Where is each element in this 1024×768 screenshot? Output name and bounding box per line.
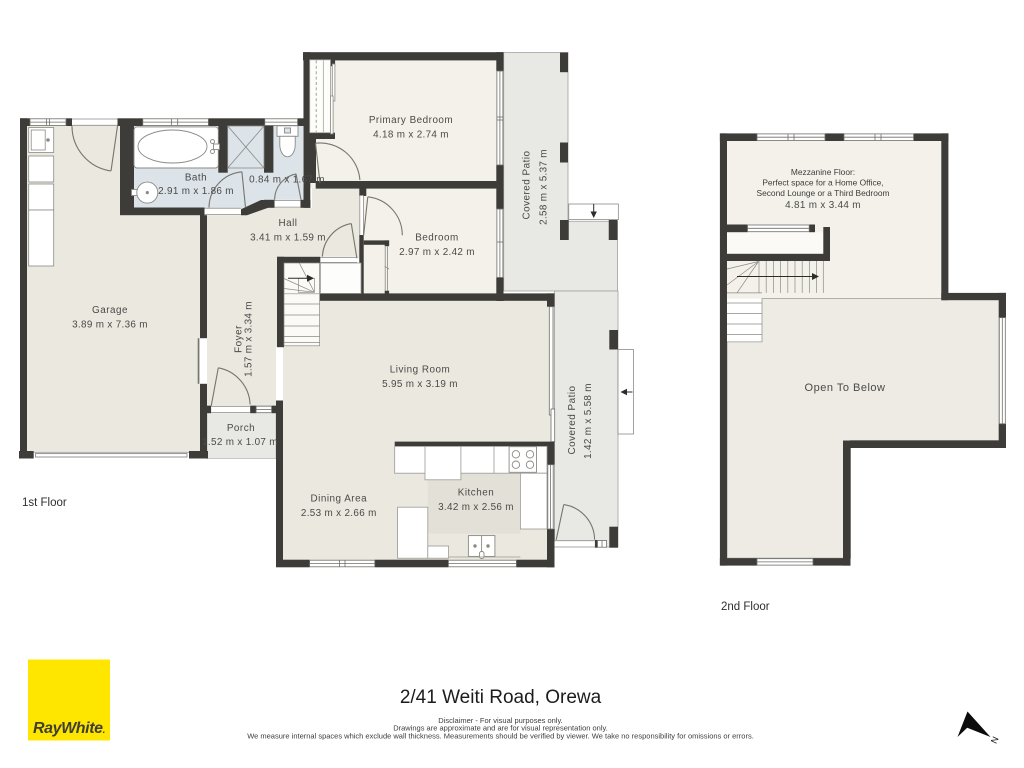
svg-text:Bedroom: Bedroom bbox=[415, 233, 459, 244]
svg-text:We measure internal spaces whi: We measure internal spaces which exclude… bbox=[247, 731, 754, 740]
svg-text:Porch: Porch bbox=[227, 423, 255, 434]
svg-text:3.41 m x 1.59 m: 3.41 m x 1.59 m bbox=[250, 233, 326, 244]
svg-text:N: N bbox=[989, 735, 1001, 745]
svg-text:Kitchen: Kitchen bbox=[458, 488, 494, 499]
svg-text:2.91 m x 1.86 m: 2.91 m x 1.86 m bbox=[158, 186, 234, 197]
svg-text:0.84 m x 1.67 m: 0.84 m x 1.67 m bbox=[249, 175, 325, 186]
svg-text:2.97 m x 2.42 m: 2.97 m x 2.42 m bbox=[399, 247, 475, 258]
svg-text:1.57 m x 3.34 m: 1.57 m x 3.34 m bbox=[243, 301, 254, 377]
svg-text:5.95 m x 3.19 m: 5.95 m x 3.19 m bbox=[382, 379, 458, 390]
svg-text:1.42 m x 5.58 m: 1.42 m x 5.58 m bbox=[583, 383, 594, 459]
svg-text:3.89 m x 7.36 m: 3.89 m x 7.36 m bbox=[72, 319, 148, 330]
svg-text:2.53 m x 2.66 m: 2.53 m x 2.66 m bbox=[301, 508, 377, 519]
svg-text:Second Lounge or a Third Bedro: Second Lounge or a Third Bedroom bbox=[756, 188, 889, 198]
svg-text:Dining Area: Dining Area bbox=[311, 494, 368, 505]
svg-text:4.18 m x 2.74 m: 4.18 m x 2.74 m bbox=[373, 130, 449, 141]
svg-text:Mezzanine Floor:: Mezzanine Floor: bbox=[791, 167, 855, 177]
svg-text:Living Room: Living Room bbox=[390, 365, 450, 376]
svg-text:Garage: Garage bbox=[92, 305, 128, 316]
svg-text:Covered Patio: Covered Patio bbox=[521, 150, 532, 219]
svg-text:4.81 m x 3.44 m: 4.81 m x 3.44 m bbox=[785, 200, 861, 211]
svg-text:Bath: Bath bbox=[185, 172, 207, 183]
svg-text:2.58 m x 5.37 m: 2.58 m x 5.37 m bbox=[538, 149, 549, 225]
svg-text:Open To Below: Open To Below bbox=[805, 382, 886, 394]
svg-text:1.52 m x 1.07 m: 1.52 m x 1.07 m bbox=[202, 437, 278, 448]
svg-text:2/41 Weiti Road, Orewa: 2/41 Weiti Road, Orewa bbox=[400, 687, 602, 708]
svg-text:Primary Bedroom: Primary Bedroom bbox=[369, 115, 453, 126]
svg-text:2nd Floor: 2nd Floor bbox=[721, 601, 770, 613]
svg-text:3.42 m x 2.56 m: 3.42 m x 2.56 m bbox=[438, 502, 514, 513]
svg-text:Covered Patio: Covered Patio bbox=[567, 385, 578, 454]
svg-text:1st Floor: 1st Floor bbox=[22, 497, 67, 509]
svg-text:Perfect space for a Home Offic: Perfect space for a Home Office, bbox=[762, 178, 883, 188]
svg-text:RayWhite.: RayWhite. bbox=[33, 720, 105, 737]
svg-text:Hall: Hall bbox=[278, 218, 297, 229]
